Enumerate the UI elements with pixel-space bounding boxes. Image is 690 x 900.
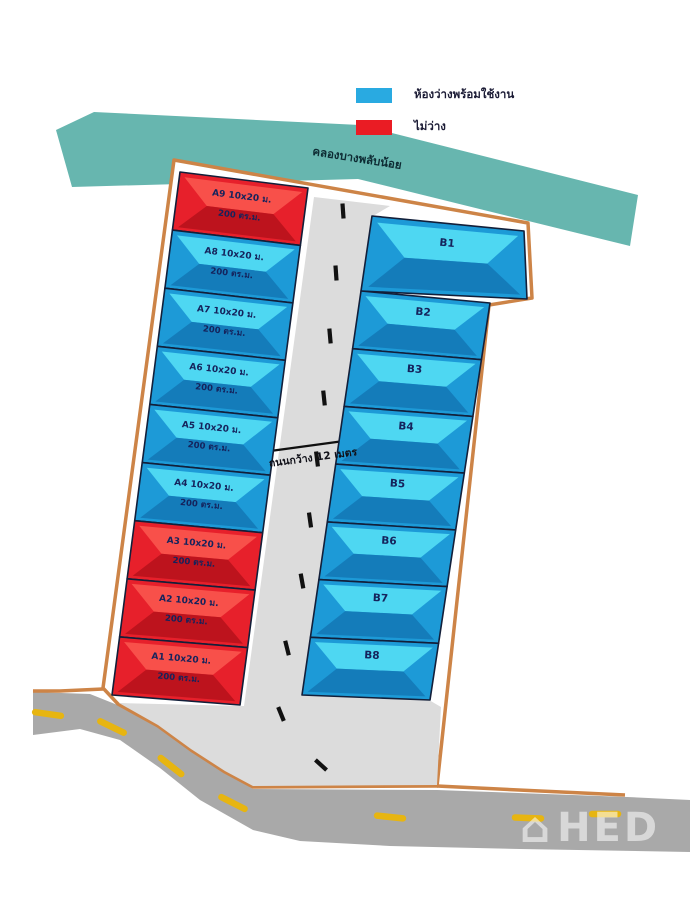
unit-B8: B8: [302, 637, 439, 700]
legend-item-occupied: ไม่ว่าง: [356, 118, 514, 136]
site-plan: A9 10x20 ม.200 ตร.ม.A8 10x20 ม.200 ตร.ม.…: [0, 0, 690, 900]
road-centerline-dash: [329, 329, 330, 344]
boundary-extension-left: [33, 689, 103, 691]
unit-B3: B3: [344, 349, 481, 417]
road-centerline-dash: [309, 513, 311, 528]
legend-item-available: ห้องว่างพร้อมใช้งาน: [356, 86, 514, 104]
occupied-color-swatch: [356, 120, 392, 135]
road-centerline-dash: [301, 574, 304, 589]
unit-label: B7: [372, 592, 388, 605]
road-centerline-dash: [323, 391, 325, 406]
legend: ห้องว่างพร้อมใช้งาน ไม่ว่าง: [356, 86, 514, 150]
unit-A2: A2 10x20 ม.200 ตร.ม.: [120, 579, 256, 648]
watermark-house-icon: ⌂: [520, 803, 553, 852]
unit-A3: A3 10x20 ม.200 ตร.ม.: [127, 521, 263, 590]
unit-label: B3: [406, 363, 422, 376]
unit-label: B6: [381, 535, 397, 548]
street-lane-dash: [377, 816, 403, 819]
available-color-swatch: [356, 88, 392, 103]
watermark-text: HED: [557, 805, 660, 851]
unit-B6: B6: [319, 522, 456, 587]
unit-B5: B5: [327, 464, 464, 530]
watermark: ⌂ HED: [520, 803, 660, 852]
unit-B4: B4: [336, 406, 473, 473]
street-lane-dash: [35, 712, 61, 716]
unit-label: B8: [364, 649, 380, 662]
unit-label: B1: [439, 237, 455, 250]
unit-B2: B2: [353, 291, 490, 360]
available-label: ห้องว่างพร้อมใช้งาน: [414, 86, 514, 104]
unit-A1: A1 10x20 ม.200 ตร.ม.: [112, 637, 248, 705]
occupied-label: ไม่ว่าง: [414, 118, 446, 136]
road-centerline-dash: [342, 204, 343, 219]
unit-B1: B1: [361, 216, 527, 299]
unit-B7: B7: [310, 580, 447, 644]
unit-label: B4: [398, 420, 414, 433]
unit-label: B5: [389, 477, 405, 490]
unit-label: B2: [415, 306, 431, 319]
road-centerline-dash: [335, 266, 336, 281]
